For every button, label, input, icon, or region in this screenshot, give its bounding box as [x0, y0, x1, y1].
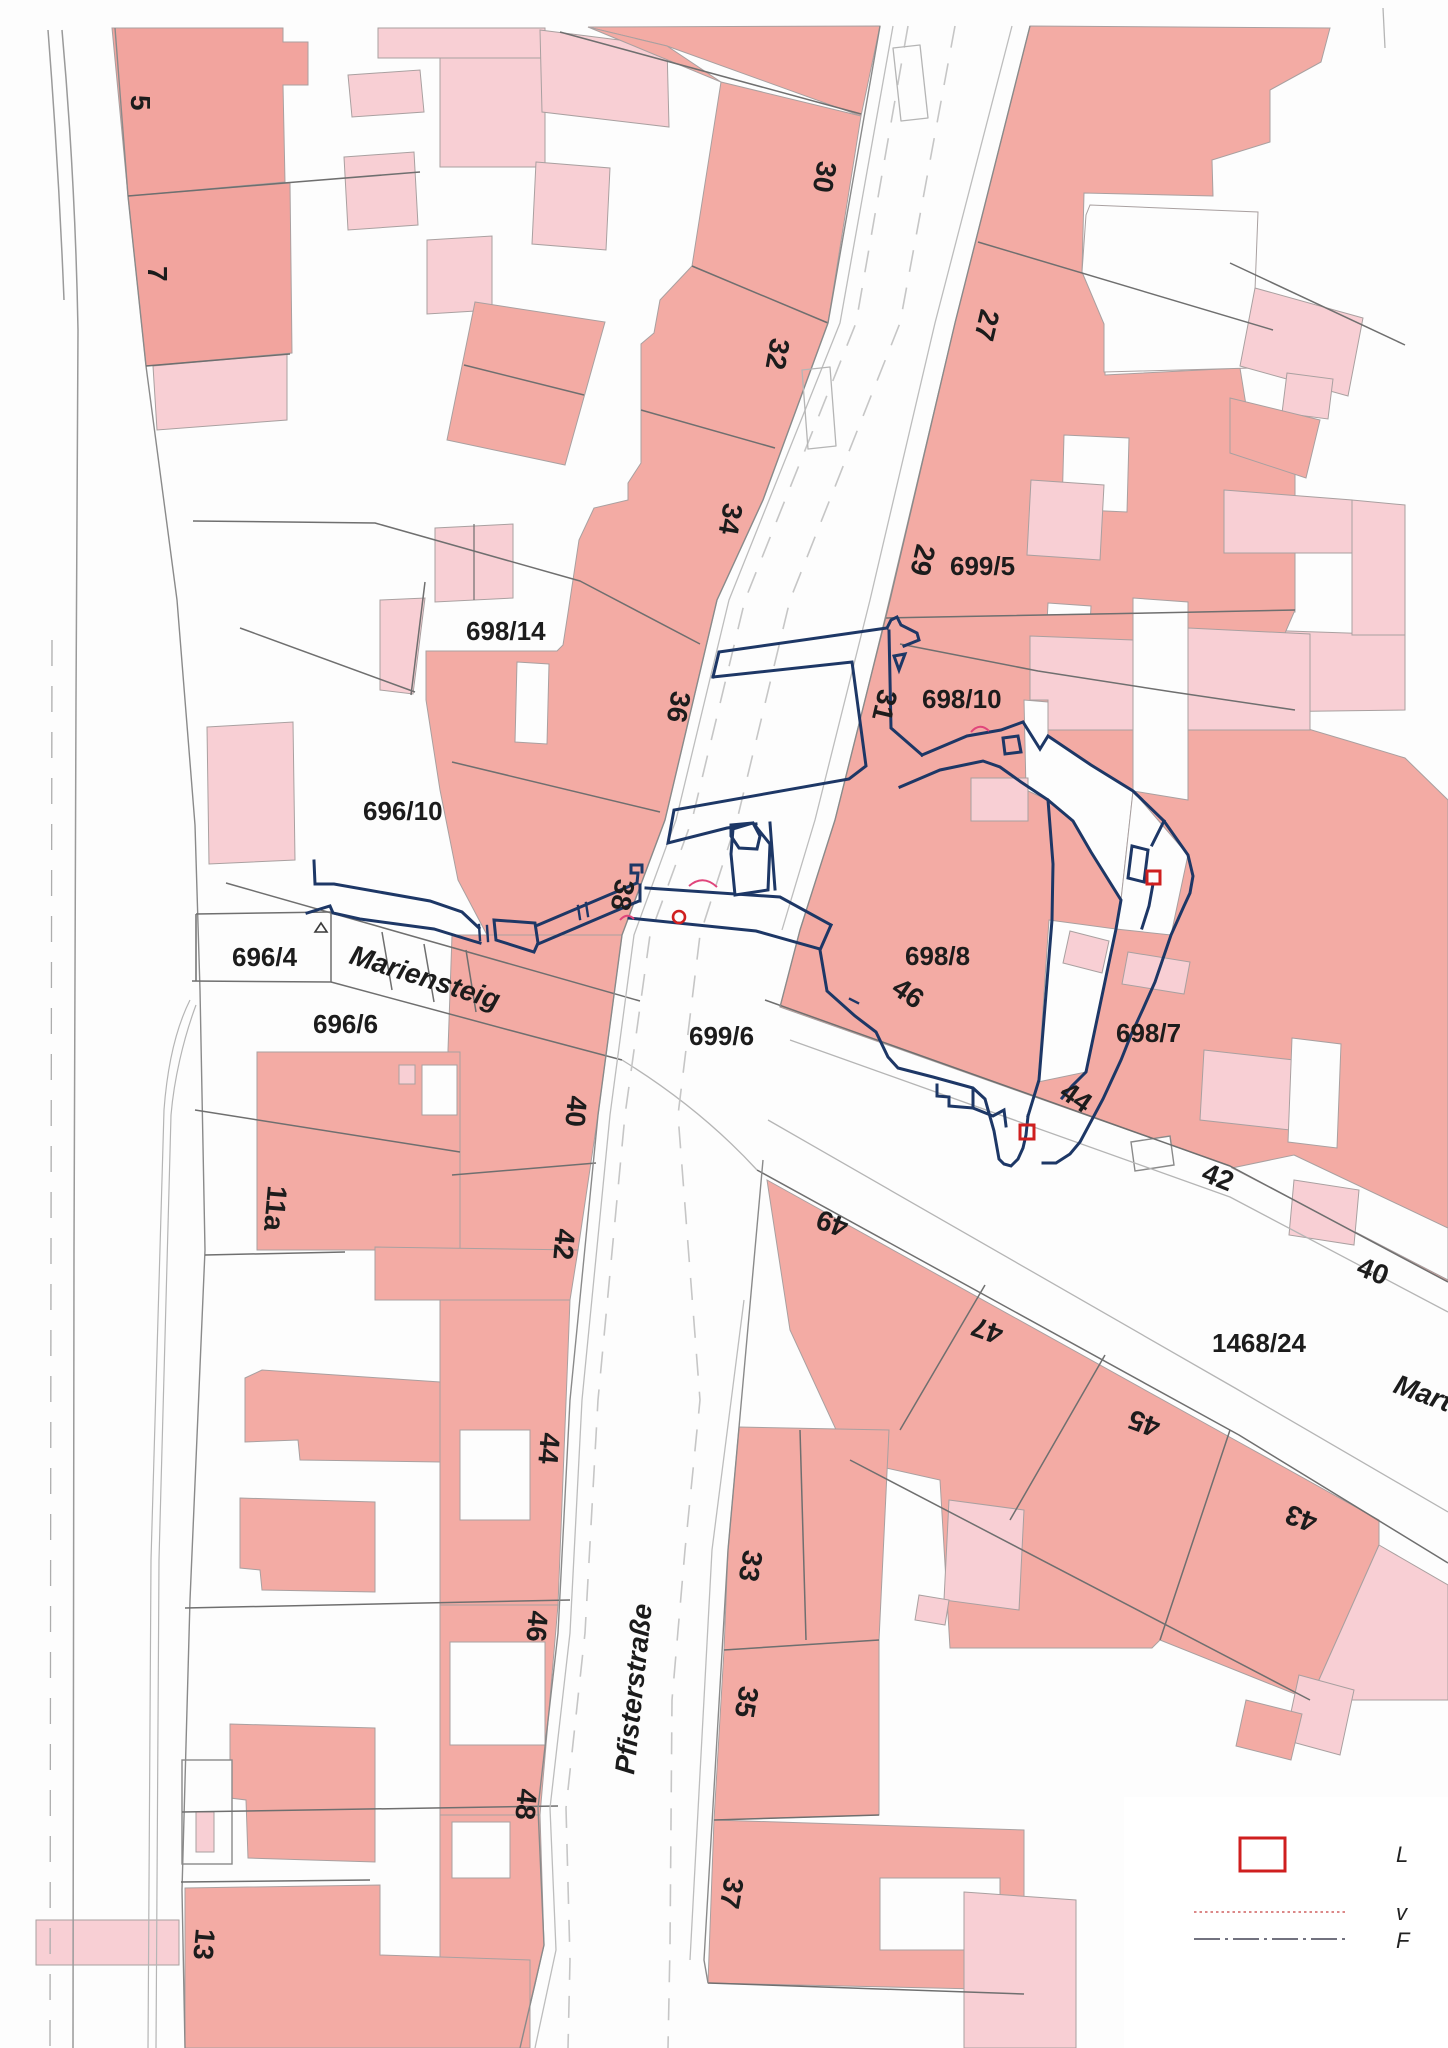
svg-text:33: 33 — [733, 1548, 769, 1584]
svg-text:32: 32 — [760, 336, 796, 372]
svg-text:696/10: 696/10 — [363, 796, 443, 826]
svg-text:36: 36 — [661, 689, 697, 725]
svg-text:F: F — [1396, 1928, 1411, 1953]
svg-text:44: 44 — [532, 1431, 566, 1465]
svg-text:699/5: 699/5 — [950, 551, 1015, 581]
svg-text:11a: 11a — [258, 1184, 293, 1232]
svg-text:38: 38 — [605, 877, 641, 913]
svg-text:40: 40 — [559, 1094, 593, 1128]
svg-text:696/4: 696/4 — [232, 942, 298, 972]
svg-text:30: 30 — [807, 159, 843, 195]
svg-text:5: 5 — [125, 95, 156, 111]
svg-text:46: 46 — [520, 1609, 554, 1643]
svg-text:37: 37 — [714, 1875, 750, 1911]
svg-text:698/10: 698/10 — [922, 684, 1002, 714]
svg-text:699/6: 699/6 — [689, 1021, 754, 1051]
svg-text:696/6: 696/6 — [313, 1009, 378, 1039]
svg-text:35: 35 — [729, 1684, 765, 1720]
svg-text:42: 42 — [547, 1227, 581, 1261]
svg-text:L: L — [1396, 1842, 1408, 1867]
svg-text:13: 13 — [187, 1927, 221, 1961]
svg-text:7: 7 — [142, 266, 173, 282]
svg-text:698/8: 698/8 — [905, 941, 970, 971]
svg-text:34: 34 — [713, 501, 749, 537]
svg-text:1468/24: 1468/24 — [1212, 1328, 1307, 1358]
svg-text:48: 48 — [509, 1787, 543, 1821]
svg-text:698/7: 698/7 — [1116, 1018, 1181, 1048]
svg-text:698/14: 698/14 — [466, 616, 546, 646]
